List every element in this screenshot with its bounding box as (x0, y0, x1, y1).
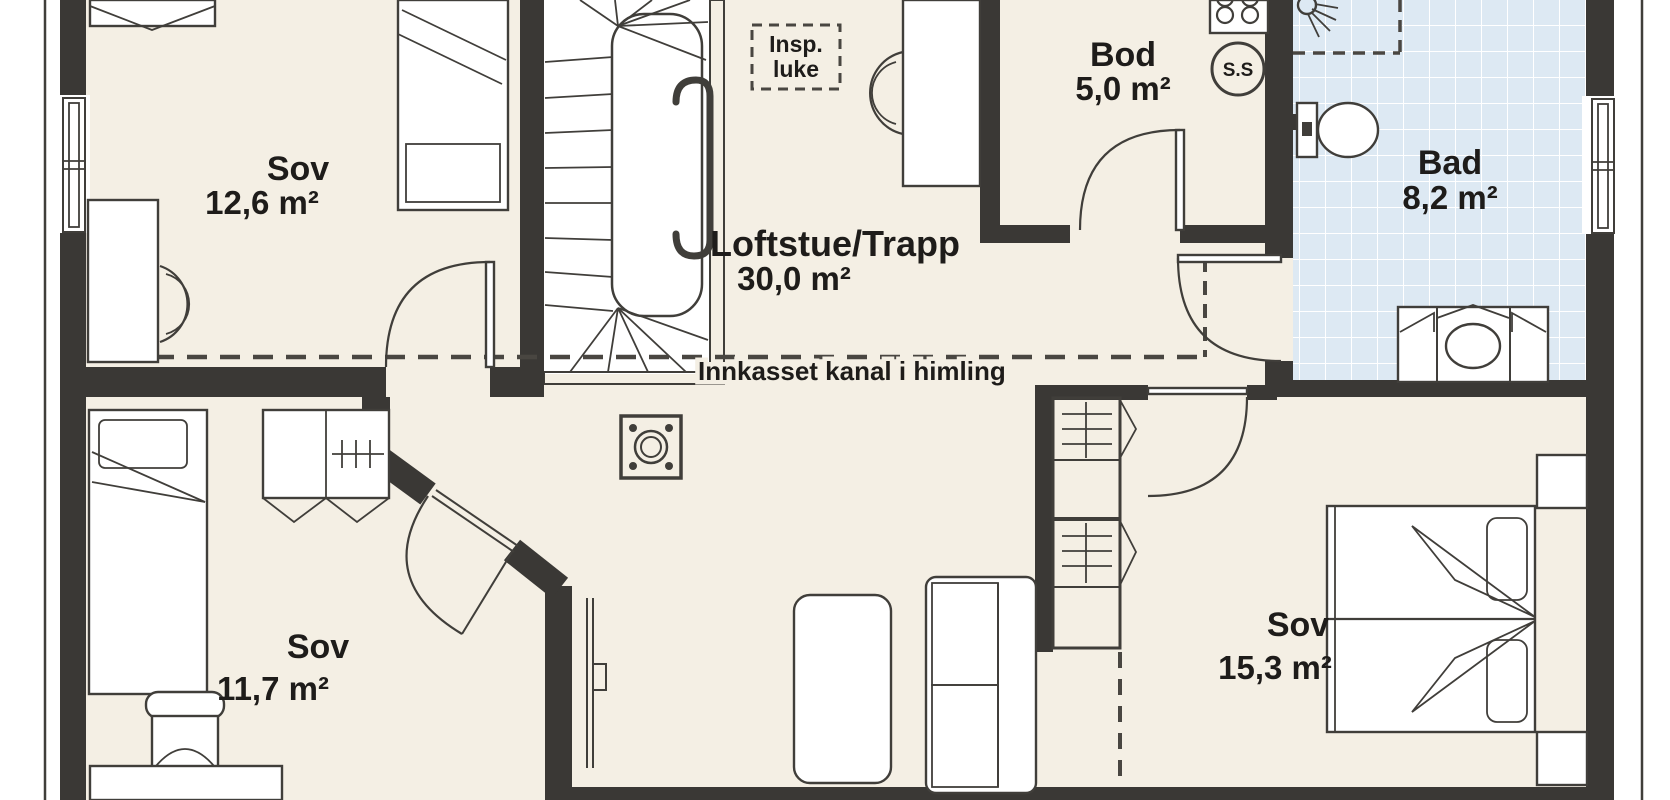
desk (90, 766, 282, 800)
bed-single (398, 0, 508, 210)
inspection-hatch-label-line2: luke (773, 56, 819, 82)
room-label-sov3-area: 15,3 m² (1218, 649, 1332, 686)
window-left (56, 95, 90, 233)
room-label-sov3-name: Sov (1267, 606, 1329, 644)
room-label-bod-area: 5,0 m² (1075, 70, 1170, 107)
bed-single (89, 410, 207, 694)
vanity-sink (1398, 305, 1548, 382)
inspection-hatch-label-line1: Insp. (769, 31, 823, 57)
chair (146, 692, 224, 768)
nightstand-top (1537, 455, 1587, 508)
staircase (544, 0, 724, 384)
room-label-sov1-name: Sov (267, 150, 329, 188)
desk (903, 0, 980, 186)
nightstand-bottom (1537, 732, 1587, 785)
room-label-loftstue-area: 30,0 m² (737, 260, 851, 297)
room-label-bad-area: 8,2 m² (1402, 179, 1497, 216)
cooktop-icon (1210, 0, 1268, 33)
bed-double (1327, 506, 1535, 732)
floor-drain-label: S.S (1223, 60, 1254, 81)
room-label-sov1-area: 12,6 m² (205, 184, 319, 221)
room-label-bod-name: Bod (1090, 36, 1156, 74)
window-bathroom (1582, 96, 1616, 234)
room-label-sov2-area: 11,7 m² (217, 670, 329, 707)
room-label-sov2-name: Sov (287, 628, 349, 666)
sofa (926, 577, 1036, 793)
floor-plan-drawing: S.S (0, 0, 1670, 800)
room-label-bad-name: Bad (1418, 144, 1482, 182)
floor-plan: S.S (0, 0, 1670, 800)
desk (88, 200, 158, 362)
ceiling-duct-label: Innkasset kanal i himling (698, 356, 1006, 386)
room-label-loftstue-name: Loftstue/Trapp (710, 223, 960, 264)
coffee-table (794, 595, 891, 783)
toilet-icon (1297, 103, 1378, 157)
wardrobe (90, 0, 215, 30)
